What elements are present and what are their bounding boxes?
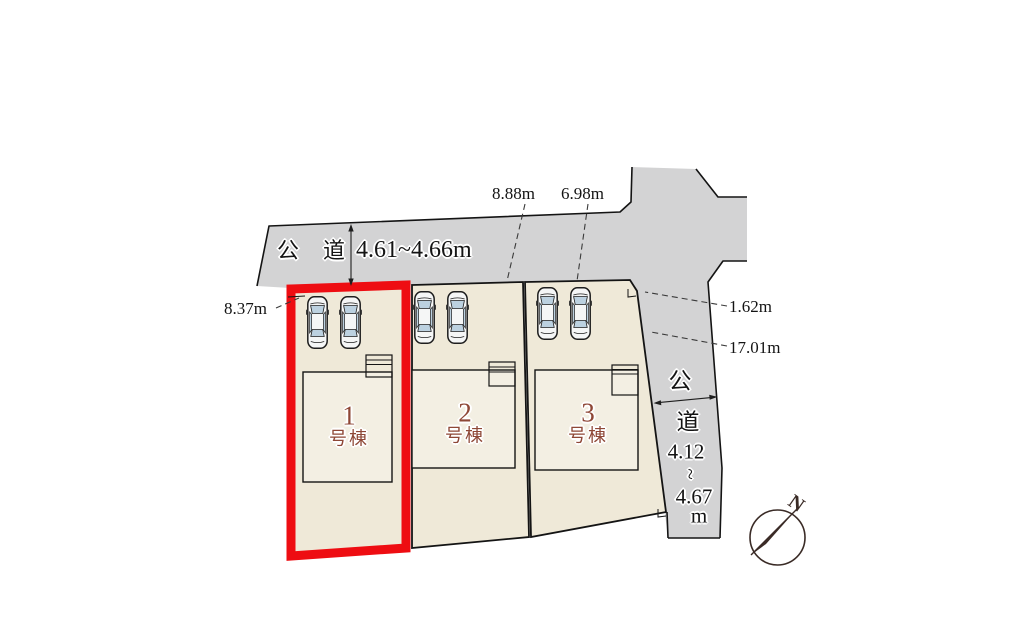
lot-1-suffix: 号棟 xyxy=(329,430,369,450)
car-icon xyxy=(536,288,559,339)
compass-north-icon xyxy=(750,509,805,565)
lot-3-suffix: 号棟 xyxy=(568,427,608,447)
lot-2-suffix: 号棟 xyxy=(445,427,485,447)
road-right-name-char-1: 公 xyxy=(669,370,692,393)
site-plan-diagram: 公道 4.61~4.66m 8.88m 6.98m 8.37m 1.62m 17… xyxy=(0,0,1024,640)
dimension-6-98m: 6.98m xyxy=(561,185,604,202)
car-icon xyxy=(339,297,362,348)
dimension-1-62m: 1.62m xyxy=(729,298,772,315)
dimension-8-37m: 8.37m xyxy=(224,300,267,317)
road-top-width-label: 4.61~4.66m xyxy=(356,238,472,262)
road-right-width-min: 4.12 xyxy=(668,442,705,463)
dimension-8-88m: 8.88m xyxy=(492,185,535,202)
lot-1-label: 1 号棟 xyxy=(329,403,369,450)
lot-3-number: 3 xyxy=(568,400,608,427)
car-icon xyxy=(569,288,592,339)
lot-2-label: 2 号棟 xyxy=(445,400,485,447)
car-icon xyxy=(446,292,469,343)
lot-3-label: 3 号棟 xyxy=(568,400,608,447)
road-right-name-char-2: 道 xyxy=(677,411,700,434)
road-right-width-unit: m xyxy=(691,506,707,527)
car-icon xyxy=(413,292,436,343)
car-icon xyxy=(306,297,329,348)
road-right-width-tilde: ~ xyxy=(680,468,701,479)
dimension-17-01m: 17.01m xyxy=(729,339,780,356)
lot-2-number: 2 xyxy=(445,400,485,427)
site-plan-drawing xyxy=(0,0,1024,640)
lot-1-number: 1 xyxy=(329,403,369,430)
